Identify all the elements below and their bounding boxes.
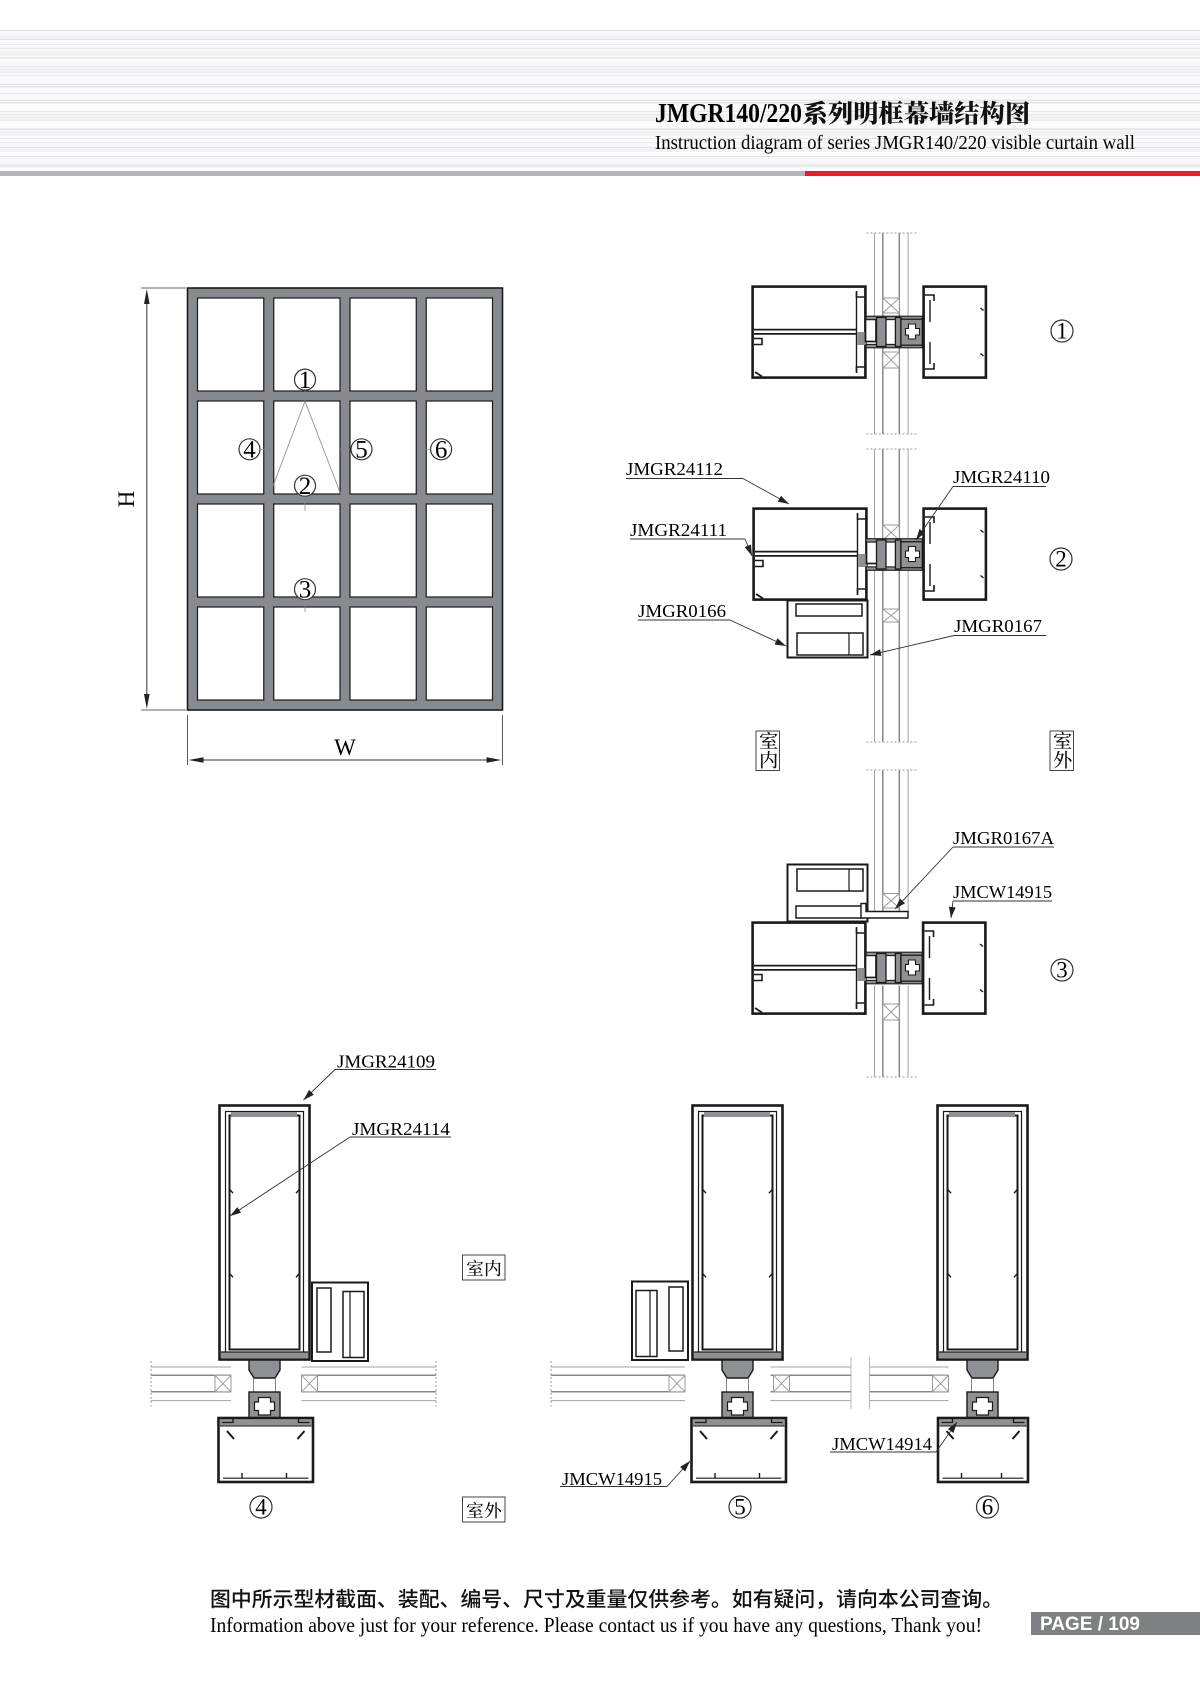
svg-text:JMGR24111: JMGR24111 — [630, 520, 727, 540]
svg-text:JMCW14915: JMCW14915 — [562, 1469, 662, 1489]
svg-text:1: 1 — [1056, 319, 1068, 344]
svg-text:JMGR24110: JMGR24110 — [953, 467, 1050, 487]
svg-text:2: 2 — [1055, 547, 1067, 572]
svg-text:W: W — [334, 735, 356, 760]
svg-text:5: 5 — [355, 437, 368, 464]
svg-text:Information above just for you: Information above just for your referenc… — [210, 1613, 982, 1637]
svg-text:JMCW14915: JMCW14915 — [953, 882, 1052, 902]
svg-text:PAGE / 109: PAGE / 109 — [1040, 1614, 1140, 1635]
svg-text:JMGR0167: JMGR0167 — [954, 616, 1042, 636]
svg-text:JMCW14914: JMCW14914 — [832, 1434, 932, 1454]
svg-text:4: 4 — [255, 1495, 267, 1520]
svg-text:6: 6 — [982, 1495, 994, 1520]
svg-text:JMGR24109: JMGR24109 — [337, 1052, 435, 1072]
svg-text:H: H — [114, 491, 139, 508]
svg-text:JMGR140/220: JMGR140/220 — [655, 97, 802, 128]
svg-text:Instruction diagram of series: Instruction diagram of series JMGR140/22… — [655, 132, 1135, 154]
svg-text:JMGR0167A: JMGR0167A — [953, 828, 1054, 848]
svg-text:JMGR24112: JMGR24112 — [626, 459, 723, 479]
svg-text:JMGR0166: JMGR0166 — [638, 601, 726, 621]
svg-text:6: 6 — [435, 437, 448, 464]
svg-text:3: 3 — [299, 577, 312, 604]
svg-text:3: 3 — [1056, 958, 1068, 983]
svg-text:5: 5 — [734, 1495, 746, 1520]
svg-text:JMGR24114: JMGR24114 — [352, 1119, 450, 1139]
svg-text:1: 1 — [299, 367, 312, 394]
svg-text:4: 4 — [243, 437, 256, 464]
svg-text:2: 2 — [299, 473, 312, 500]
